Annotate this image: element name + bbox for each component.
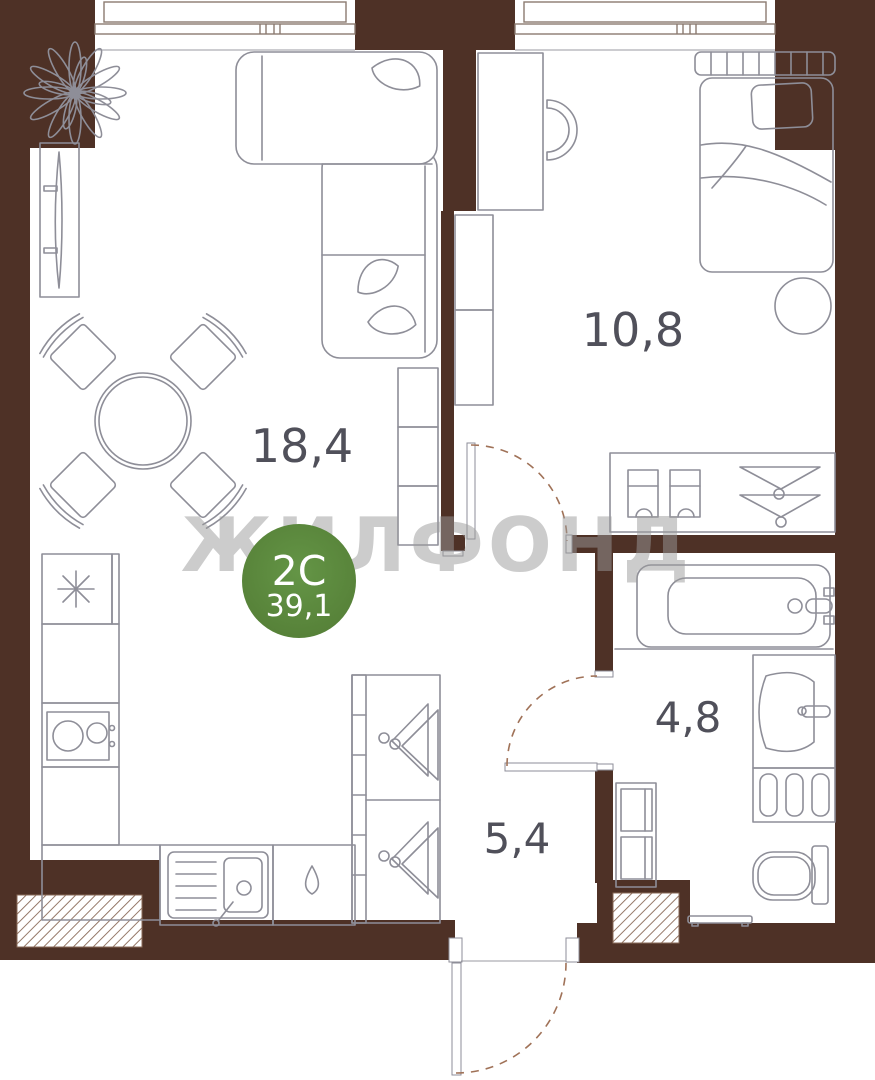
toilet [753, 846, 828, 904]
door-bathroom [505, 676, 597, 771]
dining-table-with-chairs [37, 311, 249, 531]
floorplan-page: 18,4 10,8 4,8 5,4 ЖИЛФОНД 2С 39,1 [0, 0, 875, 1080]
wall-left [0, 148, 30, 960]
kitchen-counter [42, 624, 119, 703]
wall-right [835, 150, 875, 963]
badge-area-label: 39,1 [266, 589, 333, 624]
room-label-living: 18,4 [251, 419, 353, 473]
shelving-bedroom-side [455, 215, 493, 405]
wall-bath-west-lower [595, 770, 613, 883]
wall-partition-lower [441, 211, 454, 537]
kitchen-stove [42, 703, 119, 767]
wall-cap [449, 938, 462, 962]
bathroom-cabinet [616, 783, 656, 887]
bedroom-desk [478, 53, 543, 210]
wall-cap [595, 764, 613, 770]
kitchen-counter [42, 767, 119, 845]
water-drop-icon [306, 866, 319, 894]
snowflake-icon [58, 571, 94, 607]
chair [37, 311, 120, 394]
chair [166, 311, 249, 394]
table-top [95, 373, 191, 469]
wall-cap [595, 671, 613, 677]
hanger-icon [740, 467, 820, 527]
bathroom-sink [753, 655, 835, 768]
desk-chair [547, 100, 577, 160]
vent-shaft-bathroom [613, 893, 679, 943]
hallway-wardrobe [352, 675, 440, 923]
floorplan-svg: 18,4 10,8 4,8 5,4 ЖИЛФОНД 2С 39,1 [0, 0, 875, 1080]
towel-dryer [753, 768, 835, 822]
kitchen-fridge [42, 554, 119, 624]
apartment-badge: 2С 39,1 [242, 524, 356, 638]
door-entry [452, 961, 566, 1075]
tv-unit [40, 143, 79, 297]
sofa [236, 48, 437, 358]
pouf [775, 278, 831, 334]
room-label-hallway: 5,4 [484, 814, 551, 863]
kitchen-sink [160, 845, 273, 926]
window-bedroom [515, 2, 775, 50]
room-label-bathroom: 4,8 [655, 693, 722, 742]
kitchen-counter-drop [273, 845, 355, 925]
window-living [95, 2, 355, 50]
wall-partition-upper [443, 48, 476, 211]
blanket [701, 143, 831, 205]
badge-type-label: 2С [272, 547, 327, 595]
hanger-icon [379, 822, 438, 898]
vent-shaft-kitchen [17, 895, 142, 947]
wall-cap [566, 938, 579, 962]
hanger-icon [379, 704, 438, 780]
wall-top-center-pier [355, 0, 515, 50]
chair [37, 448, 120, 531]
room-label-bedroom: 10,8 [582, 303, 684, 357]
